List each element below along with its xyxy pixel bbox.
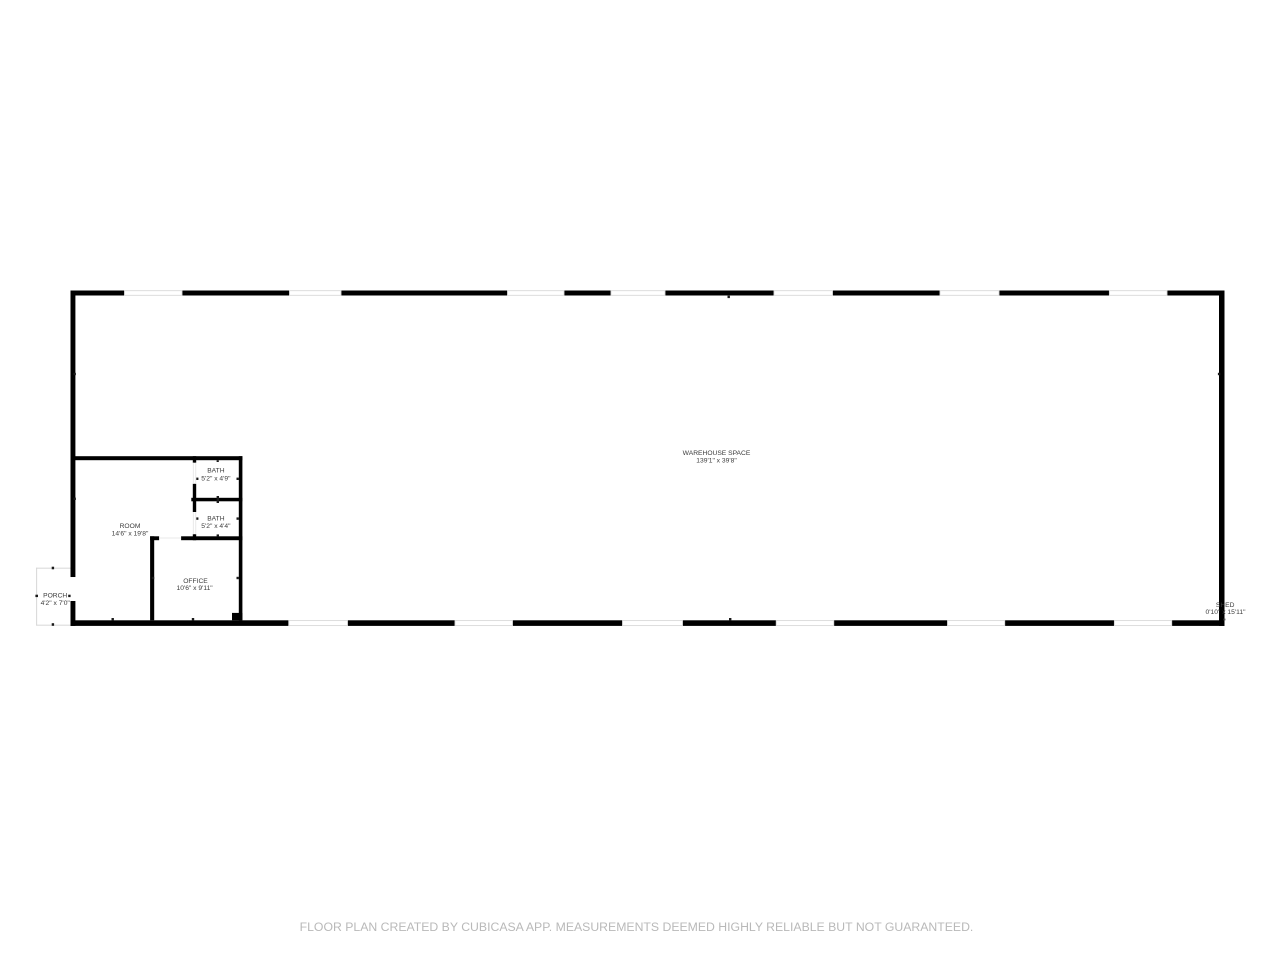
svg-text:WAREHOUSE SPACE: WAREHOUSE SPACE xyxy=(683,450,751,457)
svg-text:SHED: SHED xyxy=(1216,602,1235,609)
svg-text:OFFICE: OFFICE xyxy=(183,578,208,585)
svg-text:5'2" x 4'4": 5'2" x 4'4" xyxy=(201,523,231,530)
svg-text:0'10" x 15'11": 0'10" x 15'11" xyxy=(1206,609,1247,616)
svg-text:5'2" x 4'9": 5'2" x 4'9" xyxy=(201,476,231,483)
svg-text:14'6" x 19'8": 14'6" x 19'8" xyxy=(112,531,149,538)
svg-text:ROOM: ROOM xyxy=(120,523,141,530)
svg-text:139'1" x 39'8": 139'1" x 39'8" xyxy=(696,458,737,465)
svg-text:4'2" x 7'0": 4'2" x 7'0" xyxy=(41,600,71,607)
svg-text:10'6" x 9'11": 10'6" x 9'11" xyxy=(177,585,214,592)
svg-text:BATH: BATH xyxy=(207,468,225,475)
svg-text:BATH: BATH xyxy=(207,516,225,523)
svg-text:FLOOR PLAN CREATED BY CUBICASA: FLOOR PLAN CREATED BY CUBICASA APP. MEAS… xyxy=(300,920,974,934)
svg-text:PORCH: PORCH xyxy=(43,592,67,599)
